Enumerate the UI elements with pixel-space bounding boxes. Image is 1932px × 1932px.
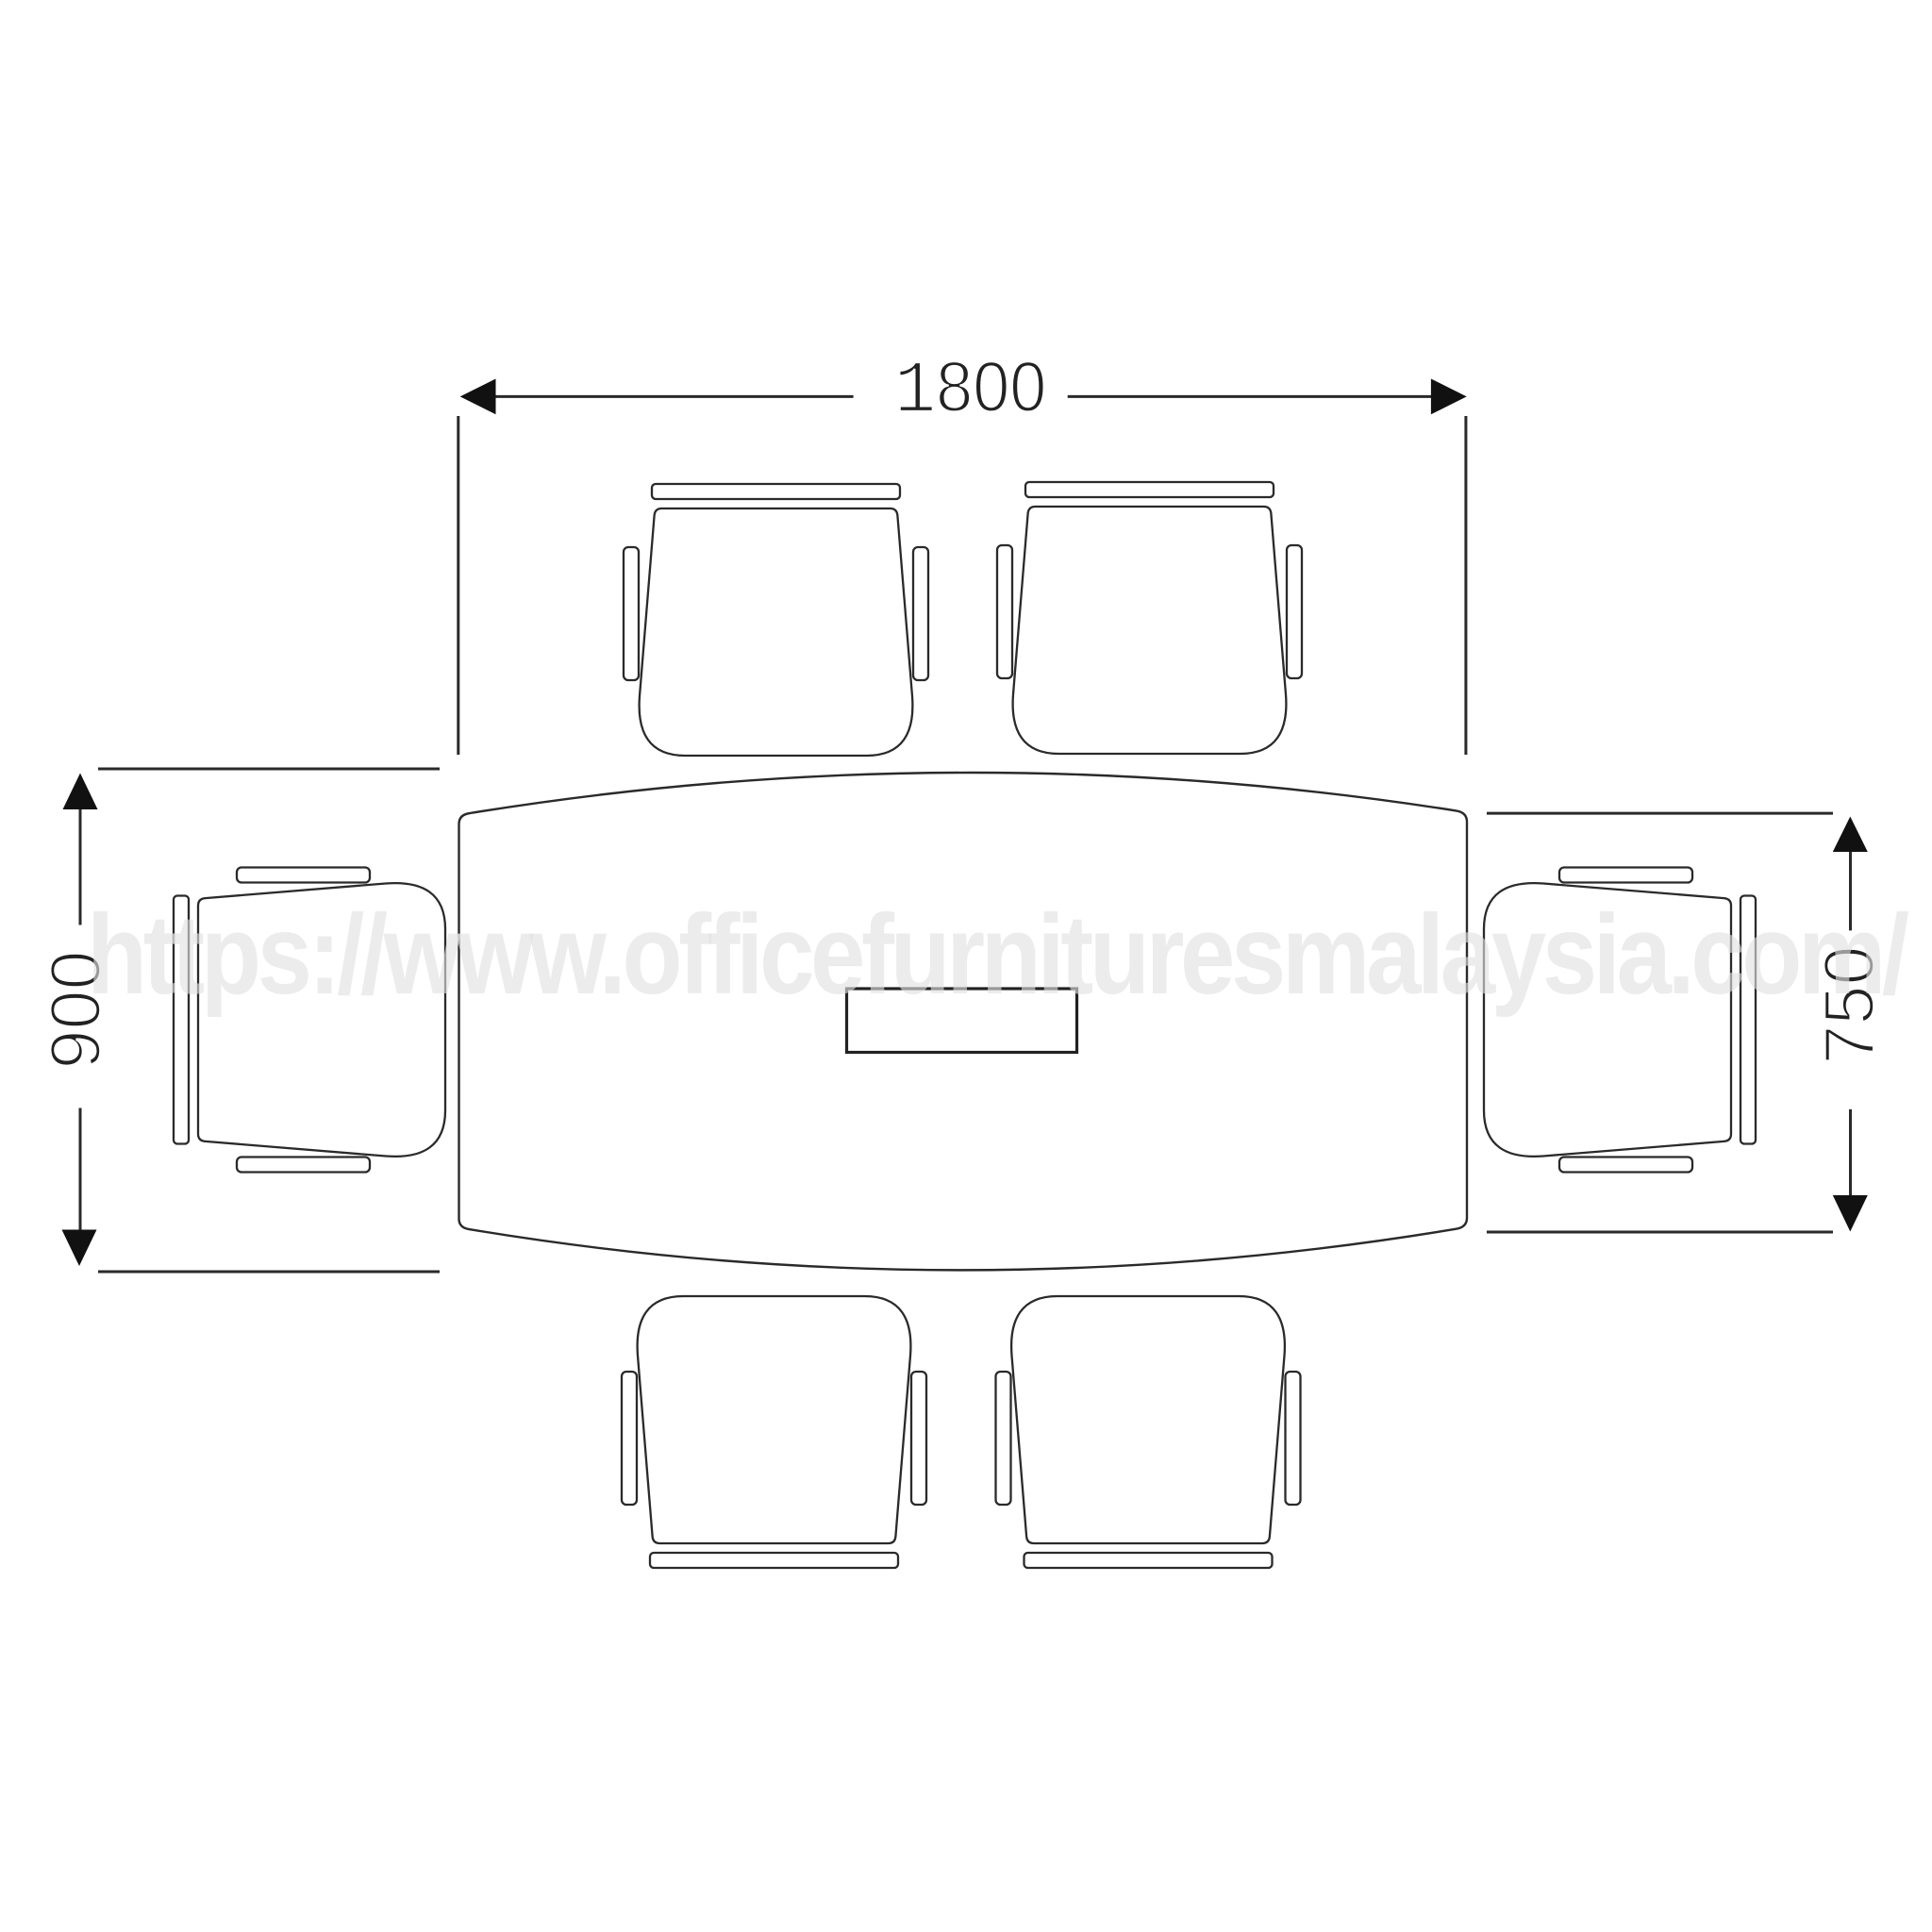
svg-text:1800: 1800 [894, 348, 1046, 434]
svg-text:https://www.officefurnituresma: https://www.officefurnituresmalaysia.com… [87, 891, 1909, 1017]
